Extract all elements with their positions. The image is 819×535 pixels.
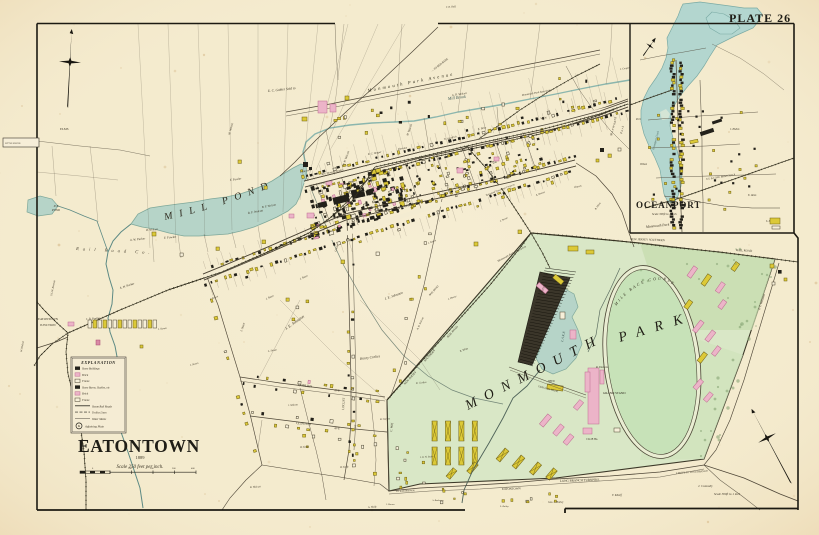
svg-text:POND: POND bbox=[51, 208, 61, 212]
svg-text:LITTLE SILVER: LITTLE SILVER bbox=[5, 143, 21, 145]
svg-text:J. Brown: J. Brown bbox=[386, 503, 395, 506]
svg-text:EXPLANATION: EXPLANATION bbox=[80, 360, 116, 365]
svg-text:Adjoining Plate: Adjoining Plate bbox=[84, 424, 105, 428]
svg-text:Port: Port bbox=[635, 118, 641, 121]
svg-text:Trolley Lines: Trolley Lines bbox=[92, 412, 107, 415]
svg-text:Scale 300ft to 1 inch: Scale 300ft to 1 inch bbox=[652, 212, 677, 216]
svg-text:SHED: SHED bbox=[548, 380, 555, 383]
svg-text:Brick: Brick bbox=[82, 393, 89, 396]
svg-text:EATONTOWN: EATONTOWN bbox=[38, 317, 59, 321]
svg-text:CLUB Ho.: CLUB Ho. bbox=[586, 438, 598, 441]
svg-text:6: 6 bbox=[78, 424, 80, 428]
svg-text:Steam Rail Roads: Steam Rail Roads bbox=[92, 405, 112, 408]
svg-text:E. Allen: E. Allen bbox=[747, 194, 757, 197]
svg-text:Wilson: Wilson bbox=[640, 163, 648, 166]
svg-text:JUNCTION: JUNCTION bbox=[40, 323, 56, 327]
svg-text:Frame: Frame bbox=[81, 399, 90, 402]
svg-text:AVE: AVE bbox=[334, 388, 340, 393]
svg-text:OCEANPORT: OCEANPORT bbox=[636, 200, 701, 210]
svg-text:Water Mains: Water Mains bbox=[92, 418, 106, 421]
svg-text:J. Connolly: J. Connolly bbox=[698, 484, 713, 488]
svg-text:Brick: Brick bbox=[82, 374, 89, 377]
svg-text:J. Hulick: J. Hulick bbox=[730, 128, 740, 131]
svg-text:EATONTOWN: EATONTOWN bbox=[78, 436, 200, 456]
svg-text:Scale 250 feet per inch.: Scale 250 feet per inch. bbox=[116, 465, 163, 470]
svg-text:1889: 1889 bbox=[136, 455, 146, 460]
svg-text:L. Bailey: L. Bailey bbox=[499, 505, 510, 508]
svg-text:ELMS: ELMS bbox=[60, 127, 69, 131]
svg-text:R. Simmons: R. Simmons bbox=[595, 366, 608, 369]
svg-text:GRAND STAND: GRAND STAND bbox=[603, 391, 626, 395]
svg-text:Scale 300ft to 1 inch: Scale 300ft to 1 inch bbox=[714, 492, 741, 496]
svg-text:PLATE 26: PLATE 26 bbox=[729, 11, 791, 25]
svg-text:ST: ST bbox=[354, 424, 357, 428]
svg-text:EATONTOWN: EATONTOWN bbox=[502, 486, 522, 491]
svg-text:Frame: Frame bbox=[81, 380, 90, 383]
svg-text:F. Kiboff: F. Kiboff bbox=[611, 494, 623, 497]
svg-text:AVE: AVE bbox=[334, 426, 340, 431]
svg-text:Stone Buildings: Stone Buildings bbox=[82, 368, 100, 371]
svg-text:Stone Barns, Stables, etc: Stone Barns, Stables, etc bbox=[82, 386, 110, 389]
